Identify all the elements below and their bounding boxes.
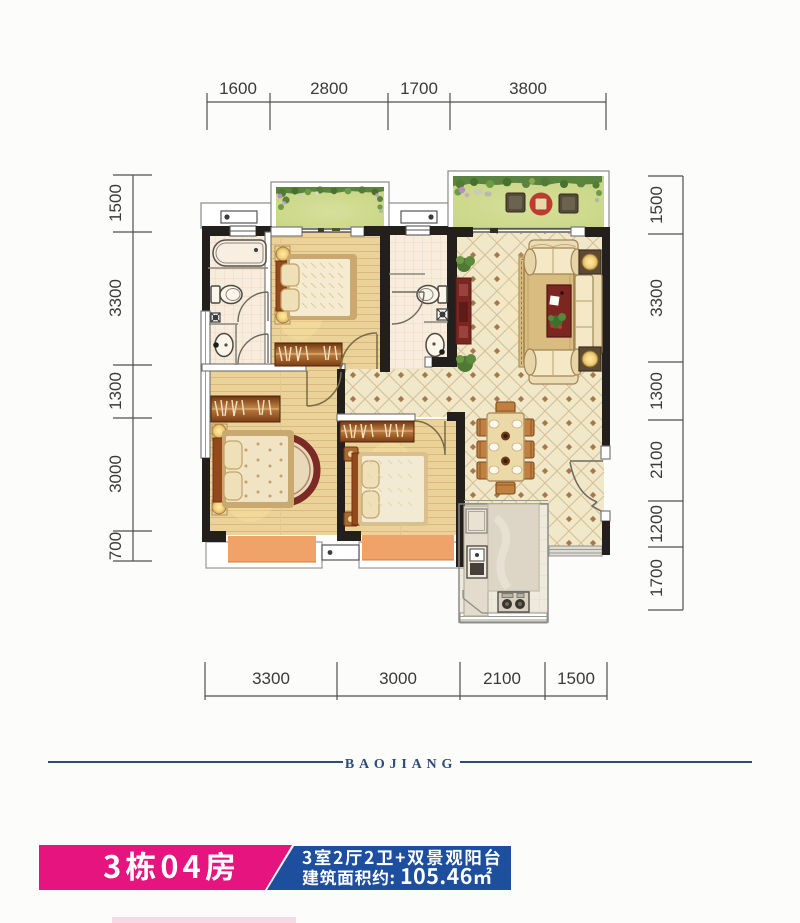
svg-text:3300: 3300: [106, 279, 125, 317]
svg-text:2100: 2100: [483, 669, 521, 688]
svg-text:3300: 3300: [647, 279, 666, 317]
svg-text:BAOJIANG: BAOJIANG: [345, 757, 457, 772]
svg-text:1200: 1200: [647, 505, 666, 543]
svg-text:3800: 3800: [509, 79, 547, 98]
svg-text:1700: 1700: [400, 79, 438, 98]
svg-text:1500: 1500: [106, 184, 125, 222]
svg-text:2100: 2100: [647, 441, 666, 479]
svg-text:3300: 3300: [252, 669, 290, 688]
svg-text:1500: 1500: [557, 669, 595, 688]
svg-text:3000: 3000: [379, 669, 417, 688]
svg-text:700: 700: [106, 532, 125, 560]
svg-text:1500: 1500: [647, 186, 666, 224]
svg-text:1600: 1600: [219, 79, 257, 98]
svg-text:1300: 1300: [106, 372, 125, 410]
svg-text:3000: 3000: [106, 455, 125, 493]
svg-text:1300: 1300: [647, 372, 666, 410]
svg-text:2800: 2800: [310, 79, 348, 98]
svg-text:1700: 1700: [647, 559, 666, 597]
